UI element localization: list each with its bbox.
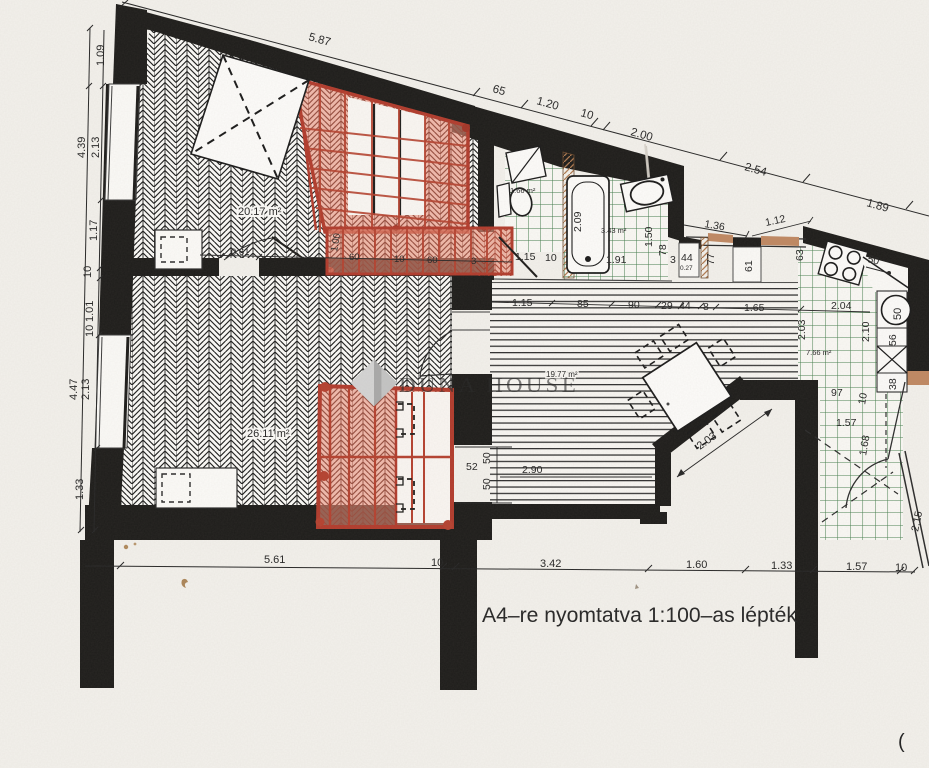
svg-text:(: ( bbox=[898, 731, 905, 753]
